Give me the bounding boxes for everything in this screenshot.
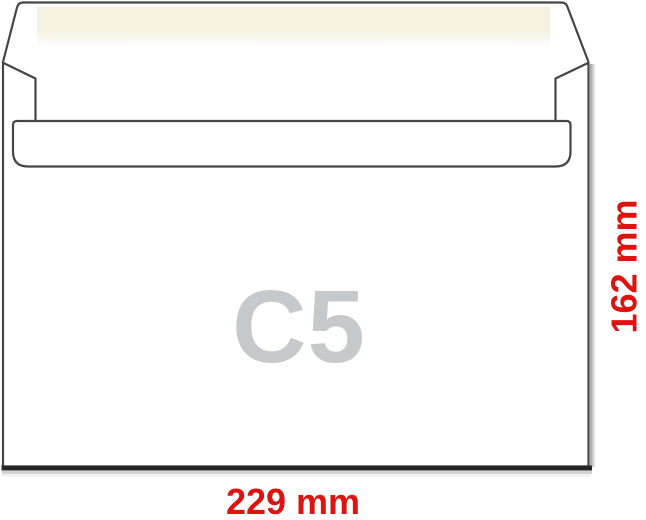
width-dimension-label: 229 mm (226, 481, 360, 520)
size-label: C5 (232, 269, 366, 384)
envelope-right-shadow (590, 64, 596, 467)
envelope-diagram-svg: C5 229 mm 162 mm (0, 0, 646, 520)
seal-strip (13, 121, 571, 167)
height-dimension-label: 162 mm (604, 199, 645, 333)
envelope-size-diagram: C5 229 mm 162 mm (0, 0, 646, 520)
adhesive-strip (37, 7, 550, 48)
